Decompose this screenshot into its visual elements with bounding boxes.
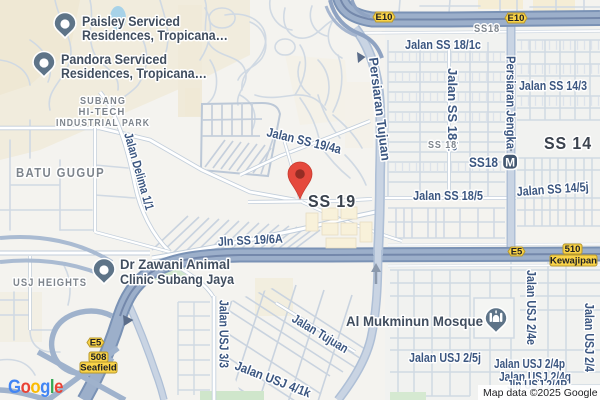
svg-text:Google: Google [8,377,63,398]
svg-text:Jalan USJ 2/4e: Jalan USJ 2/4e [524,270,538,345]
svg-text:Al Mukminun Mosque: Al Mukminun Mosque [346,313,483,329]
svg-text:Persiaran Jengka: Persiaran Jengka [504,56,519,150]
svg-text:508: 508 [91,352,107,363]
svg-text:BATU GUGUP: BATU GUGUP [16,166,105,180]
svg-text:E5: E5 [511,247,523,258]
svg-text:510: 510 [565,244,581,255]
svg-text:SUBANG: SUBANG [80,96,126,107]
svg-text:Jalan SS 18/1c: Jalan SS 18/1c [405,37,481,52]
svg-text:Jalan SS 14/3: Jalan SS 14/3 [519,78,587,93]
svg-text:Clinic Subang Jaya: Clinic Subang Jaya [120,272,234,287]
svg-text:HI-TECH: HI-TECH [79,107,126,118]
svg-text:Map data ©2025 Google: Map data ©2025 Google [483,387,598,399]
svg-text:E10: E10 [376,12,393,23]
svg-text:Jalan SS 18/2: Jalan SS 18/2 [445,68,459,151]
svg-text:INDUSTRIAL PARK: INDUSTRIAL PARK [56,118,150,129]
svg-text:Residences, Tropicana…: Residences, Tropicana… [61,66,207,81]
svg-text:Kewajipan: Kewajipan [550,256,597,267]
svg-text:M: M [505,155,515,169]
svg-text:Jalan USJ 2/5j: Jalan USJ 2/5j [409,350,481,365]
svg-text:SS 19: SS 19 [308,191,356,211]
svg-text:Jalan SS 18/5: Jalan SS 18/5 [413,188,483,203]
svg-text:USJ HEIGHTS: USJ HEIGHTS [13,277,87,289]
svg-text:SS18: SS18 [469,154,498,170]
svg-text:E5: E5 [90,338,102,349]
svg-text:Residences, Tropicana…: Residences, Tropicana… [82,28,228,43]
svg-text:Jalan USJ 2/4: Jalan USJ 2/4 [582,303,596,372]
svg-text:Pandora Serviced: Pandora Serviced [61,52,167,67]
svg-text:Jalan USJ 3/3: Jalan USJ 3/3 [217,300,231,368]
svg-text:Paisley Serviced: Paisley Serviced [82,14,180,29]
svg-text:SS18: SS18 [474,23,500,35]
svg-text:Dr Zawani Animal: Dr Zawani Animal [120,257,230,272]
svg-text:SS 18: SS 18 [428,140,457,151]
svg-text:Seafield: Seafield [80,363,117,374]
svg-text:E10: E10 [508,13,525,24]
svg-text:SS 14: SS 14 [544,133,592,153]
